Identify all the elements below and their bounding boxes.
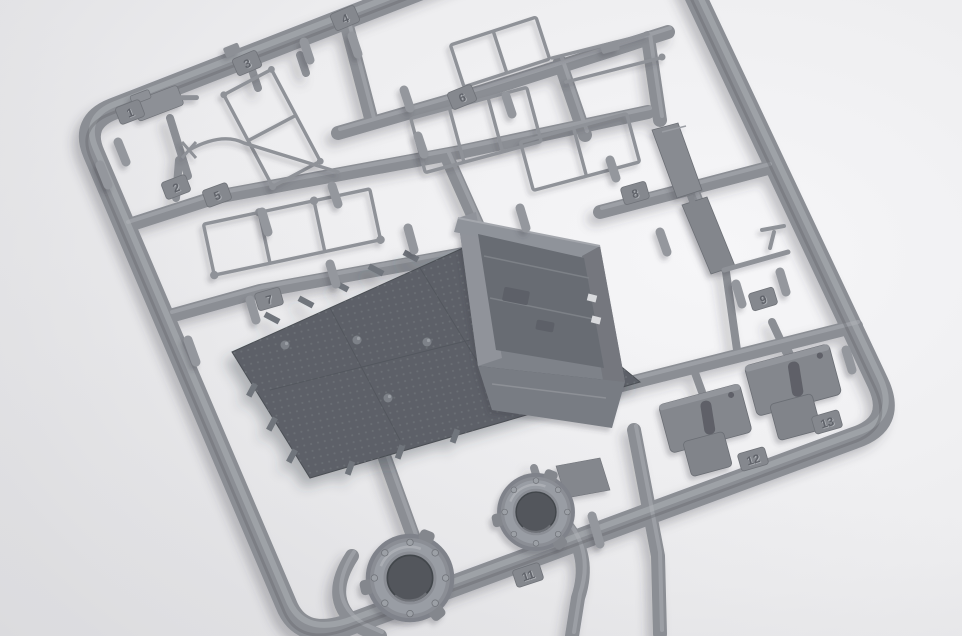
cylinder-part <box>304 42 310 60</box>
cylinder-part <box>262 212 268 232</box>
cylinder-part <box>332 186 338 204</box>
cylinder-part <box>404 90 410 108</box>
cylinder-part <box>330 264 336 284</box>
cylinder-part <box>846 350 852 370</box>
cylinder-part <box>610 160 616 178</box>
cylinder-part <box>506 96 512 114</box>
cylinder-part <box>352 36 358 54</box>
cylinder-part <box>418 136 424 154</box>
cylinder-part <box>250 300 256 320</box>
photo-of-model-kit-sprue: 1 1 2 2 3 3 4 4 5 5 6 6 7 <box>0 0 962 636</box>
cylinder-part <box>520 208 526 228</box>
cylinder-part <box>408 228 414 250</box>
sprue-photo-canvas: 1 1 2 2 3 3 4 4 5 5 6 6 7 <box>0 0 962 636</box>
